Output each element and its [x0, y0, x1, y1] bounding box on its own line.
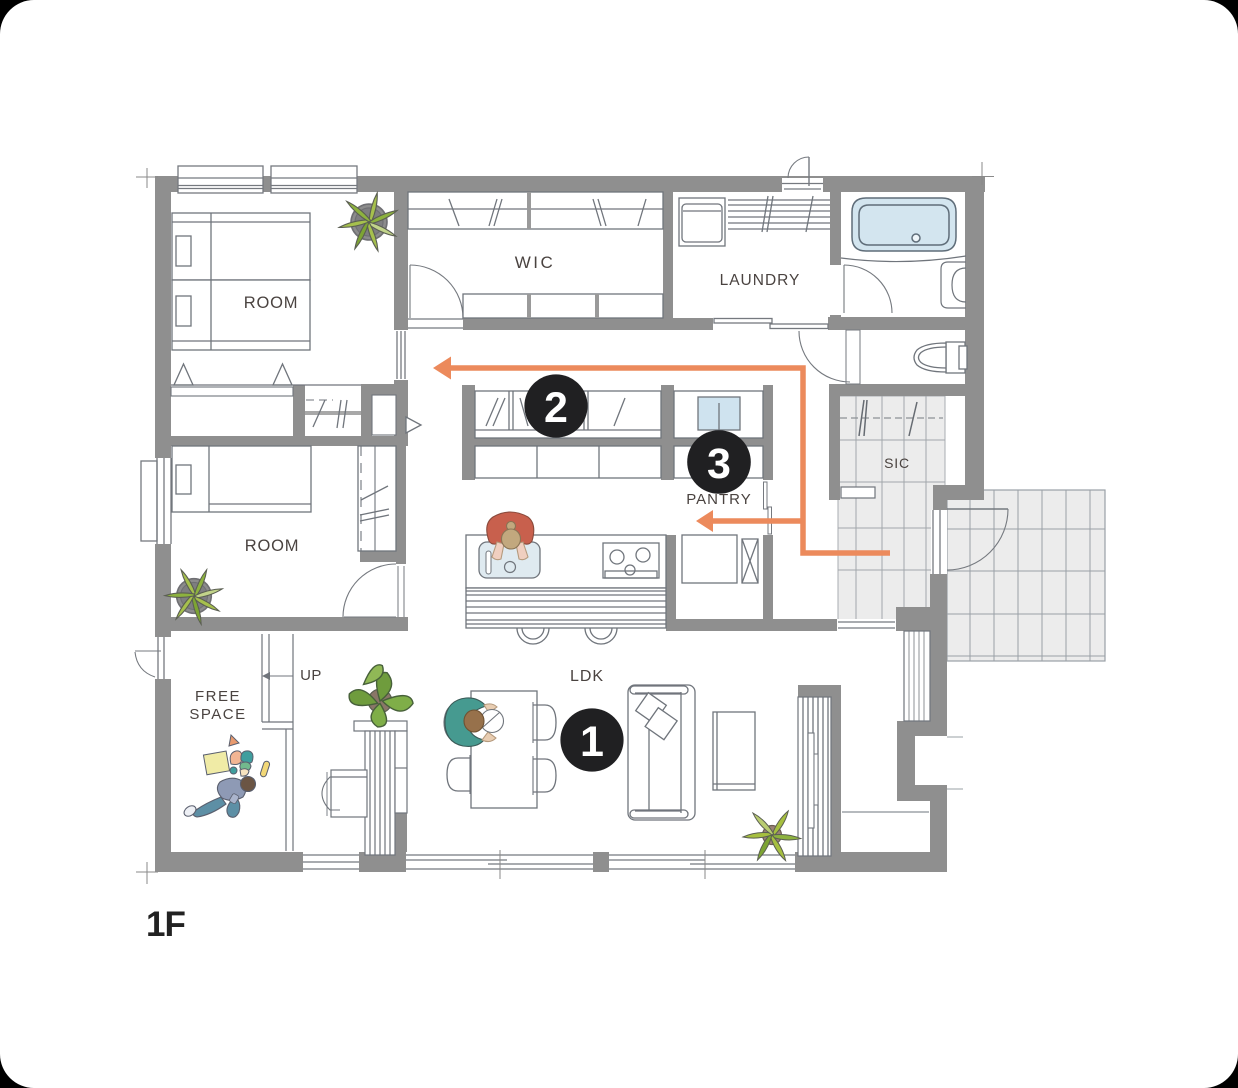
svg-text:WIC: WIC	[515, 253, 556, 272]
svg-text:ROOM: ROOM	[244, 294, 299, 312]
svg-text:LDK: LDK	[570, 668, 604, 685]
svg-text:SPACE: SPACE	[189, 706, 246, 723]
svg-text:UP: UP	[300, 667, 322, 684]
svg-text:ROOM: ROOM	[245, 537, 300, 555]
svg-text:1: 1	[580, 718, 604, 766]
svg-text:SIC: SIC	[884, 455, 910, 471]
svg-text:2: 2	[544, 384, 568, 432]
svg-text:FREE: FREE	[195, 688, 241, 705]
svg-text:PANTRY: PANTRY	[686, 491, 751, 508]
svg-text:3: 3	[707, 440, 731, 488]
svg-text:LAUNDRY: LAUNDRY	[720, 272, 801, 289]
svg-text:1F: 1F	[146, 905, 185, 944]
